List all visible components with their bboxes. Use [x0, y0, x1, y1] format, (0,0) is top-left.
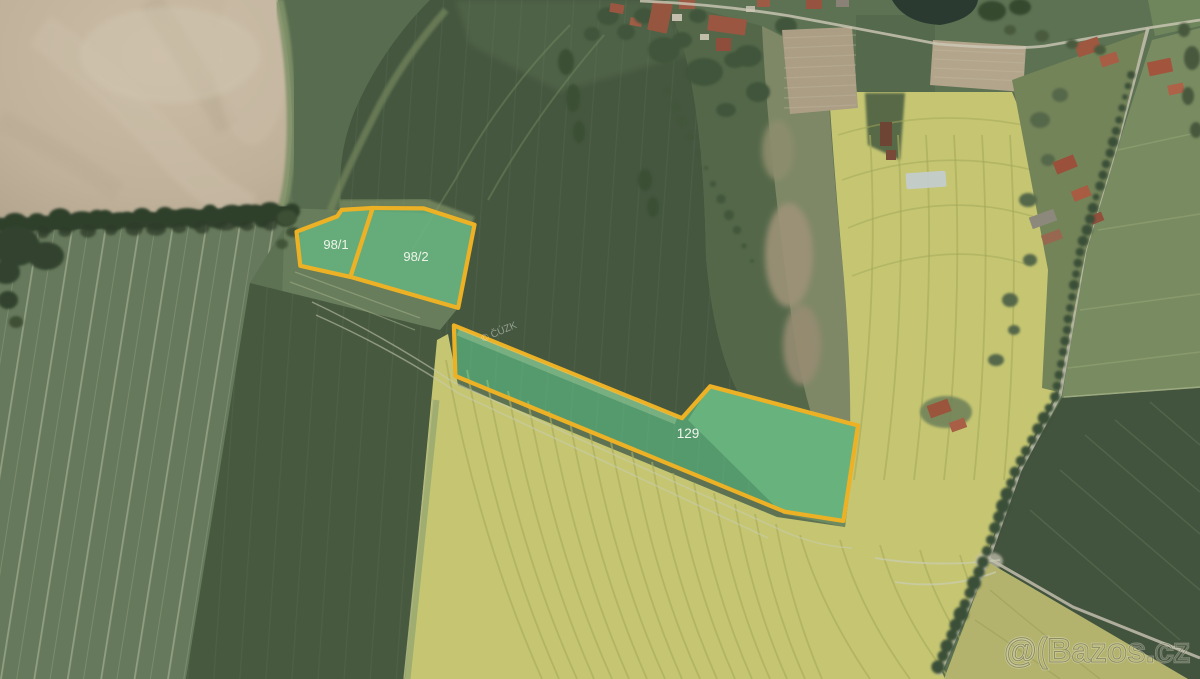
- svg-text:98/2: 98/2: [403, 249, 428, 264]
- svg-text:@(Bazos.cz: @(Bazos.cz: [1004, 632, 1190, 670]
- svg-text:129: 129: [677, 426, 700, 441]
- svg-text:98/1: 98/1: [323, 237, 348, 252]
